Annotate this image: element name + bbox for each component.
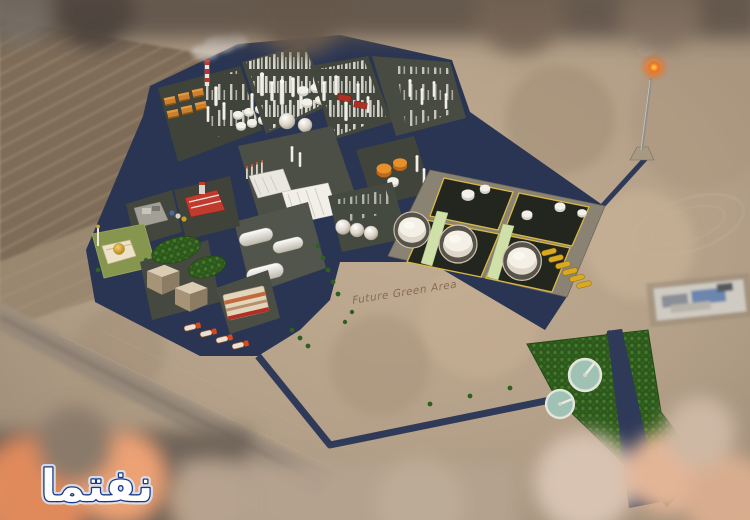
sphere-tank bbox=[279, 113, 295, 129]
small-tank bbox=[480, 185, 491, 194]
clarifier-pond bbox=[568, 358, 602, 392]
large-storage-tank bbox=[503, 242, 542, 281]
sphere-tank bbox=[298, 118, 312, 132]
minaret bbox=[97, 228, 99, 246]
small-tank bbox=[555, 202, 566, 212]
top-fade bbox=[0, 0, 750, 60]
small-tank bbox=[462, 189, 475, 201]
flare-flame bbox=[647, 61, 662, 76]
large-storage-tank bbox=[394, 212, 430, 248]
watermark-logo: نفتما نفتما bbox=[41, 461, 153, 512]
small-tank bbox=[577, 209, 587, 217]
watermark-text: نفتما bbox=[41, 461, 153, 512]
striped-stack bbox=[205, 60, 209, 86]
large-storage-tank bbox=[439, 225, 477, 263]
gold-dome bbox=[114, 244, 125, 255]
scene-canvas: Future Green Area bbox=[0, 0, 750, 520]
aerial-scene: Future Green Area bbox=[0, 0, 750, 520]
small-tank bbox=[522, 210, 533, 220]
